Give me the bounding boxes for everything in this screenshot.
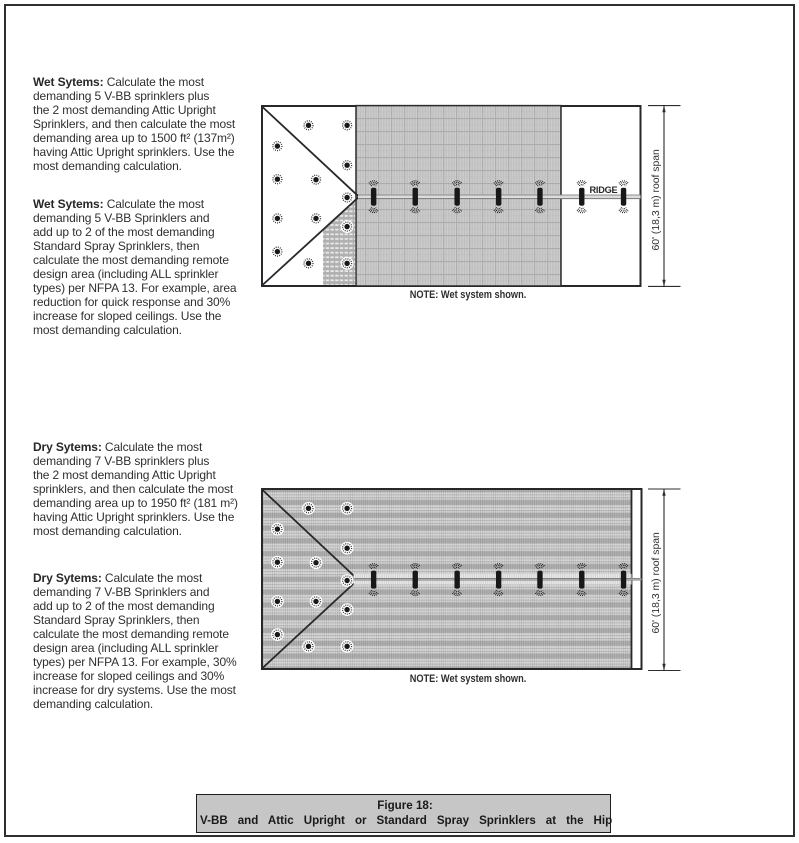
svg-text:60' (18,3 m) roof span: 60' (18,3 m) roof span [651, 532, 662, 634]
svg-text:60' (18,3 m) roof span: 60' (18,3 m) roof span [651, 149, 662, 251]
svg-text:RIDGE: RIDGE [590, 185, 618, 195]
